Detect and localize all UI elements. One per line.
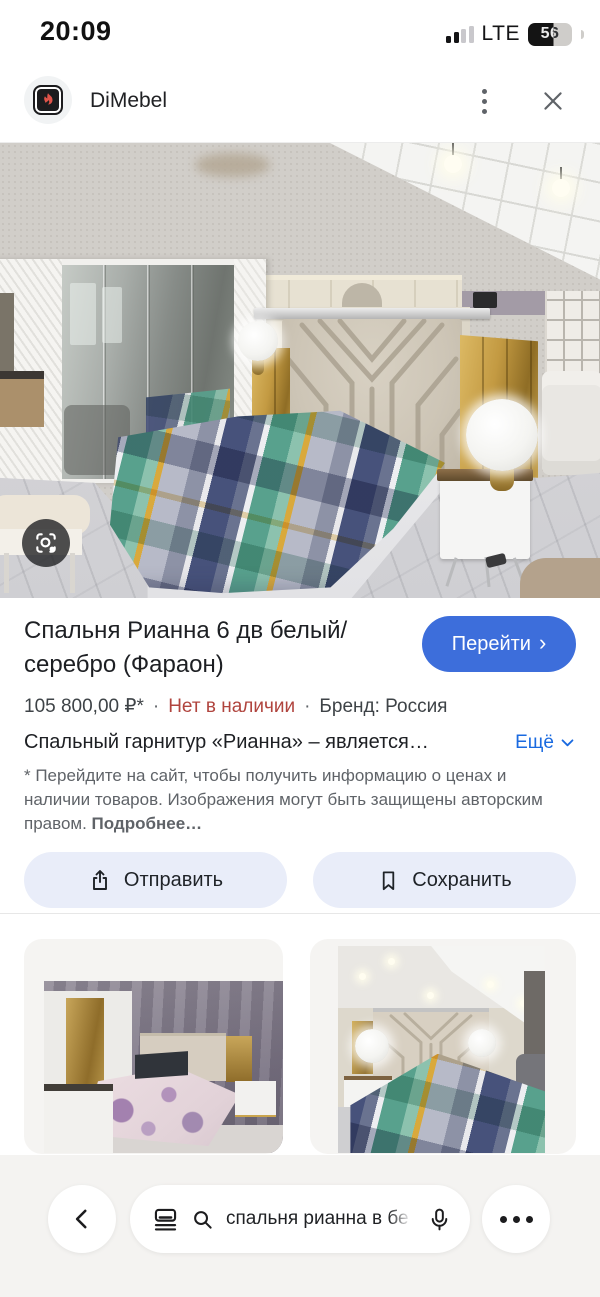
ceiling-light: [552, 179, 570, 197]
price-disclaimer: * Перейдите на сайт, чтобы получить инфо…: [24, 764, 576, 836]
share-icon: [88, 868, 112, 892]
signal-strength-icon: [446, 25, 474, 43]
search-bar[interactable]: спальня рианна в бе: [130, 1185, 470, 1253]
voice-search-icon[interactable]: [427, 1207, 452, 1232]
feather-lamp: [238, 321, 278, 361]
status-indicators: LTE 56: [446, 22, 584, 46]
results-feed-icon[interactable]: [152, 1206, 179, 1233]
product-price: 105 800,00 ₽*: [24, 695, 144, 718]
bedroom-thumbnail-photo: [338, 946, 545, 1153]
battery-nub: [581, 30, 584, 39]
status-bar: 20:09 LTE 56: [0, 0, 600, 58]
source-logo[interactable]: [24, 76, 72, 124]
bedroom-thumbnail-photo: [44, 981, 283, 1153]
close-icon: [540, 88, 566, 114]
bottom-toolbar: спальня рианна в бе: [0, 1155, 600, 1297]
product-info-card: Спальня Рианна 6 дв белый/серебро (Фарао…: [0, 598, 600, 913]
availability-status: Нет в наличии: [168, 696, 295, 718]
ceiling-light: [444, 155, 462, 173]
network-type-label: LTE: [482, 22, 520, 46]
details-link[interactable]: Подробнее…: [92, 814, 203, 833]
battery-percent: 56: [541, 25, 560, 43]
back-button[interactable]: [48, 1185, 116, 1253]
battery-icon: 56: [528, 23, 572, 46]
search-icon: [191, 1208, 214, 1231]
related-image-thumbnail[interactable]: [310, 939, 576, 1154]
chevron-left-icon: [69, 1206, 95, 1232]
result-header: DiMebel: [0, 58, 600, 143]
nightstand: [440, 479, 530, 559]
close-button[interactable]: [536, 84, 570, 118]
camera-lens-icon: [33, 530, 59, 556]
phone-screen: 20:09 LTE 56 DiMebel: [0, 0, 600, 1297]
chevron-right-icon: ›: [539, 632, 546, 654]
share-button[interactable]: Отправить: [24, 852, 287, 908]
product-description-preview: Спальный гарнитур «Рианна» – является…: [24, 731, 429, 754]
more-options-button[interactable]: [470, 84, 498, 118]
dimebel-logo-icon: [33, 85, 63, 115]
bookmark-icon: [377, 869, 400, 892]
product-brand: Бренд: Россия: [319, 696, 447, 718]
search-inside-image-button[interactable]: [22, 519, 70, 567]
save-button[interactable]: Сохранить: [313, 852, 576, 908]
overflow-menu-button[interactable]: [482, 1185, 550, 1253]
related-images-section: [0, 913, 600, 1155]
visit-site-button[interactable]: Перейти ›: [422, 616, 576, 672]
search-query[interactable]: спальня рианна в бе: [226, 1208, 415, 1230]
feather-lamp: [466, 399, 538, 471]
product-meta: 105 800,00 ₽* · Нет в наличии · Бренд: Р…: [24, 695, 576, 718]
related-image-thumbnail[interactable]: [24, 939, 283, 1154]
clock: 20:09: [40, 16, 112, 47]
product-title: Спальня Рианна 6 дв белый/серебро (Фарао…: [24, 614, 410, 682]
expand-description-link[interactable]: Ещё: [515, 732, 576, 754]
chevron-down-icon: [559, 734, 576, 751]
source-name: DiMebel: [90, 89, 167, 113]
product-photo[interactable]: [0, 143, 600, 598]
